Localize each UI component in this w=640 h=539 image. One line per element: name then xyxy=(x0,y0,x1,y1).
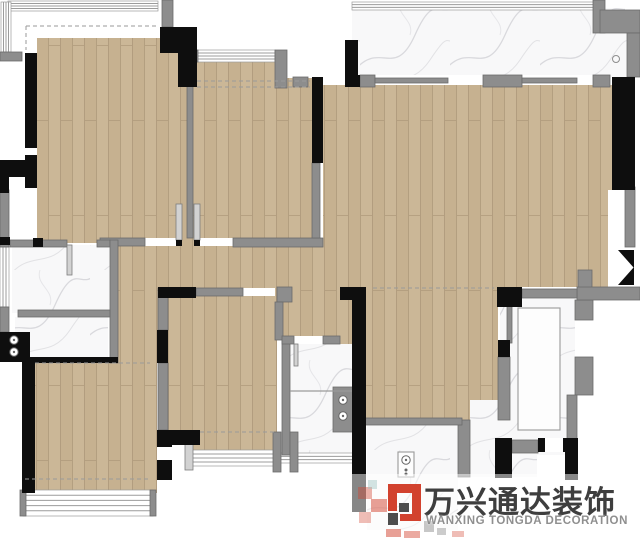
brand-logo-mark xyxy=(350,474,640,538)
floor-plan-svg xyxy=(0,0,640,539)
floor-plan: 万兴通达装饰 WANXING TONGDA DECORATION xyxy=(0,0,640,539)
